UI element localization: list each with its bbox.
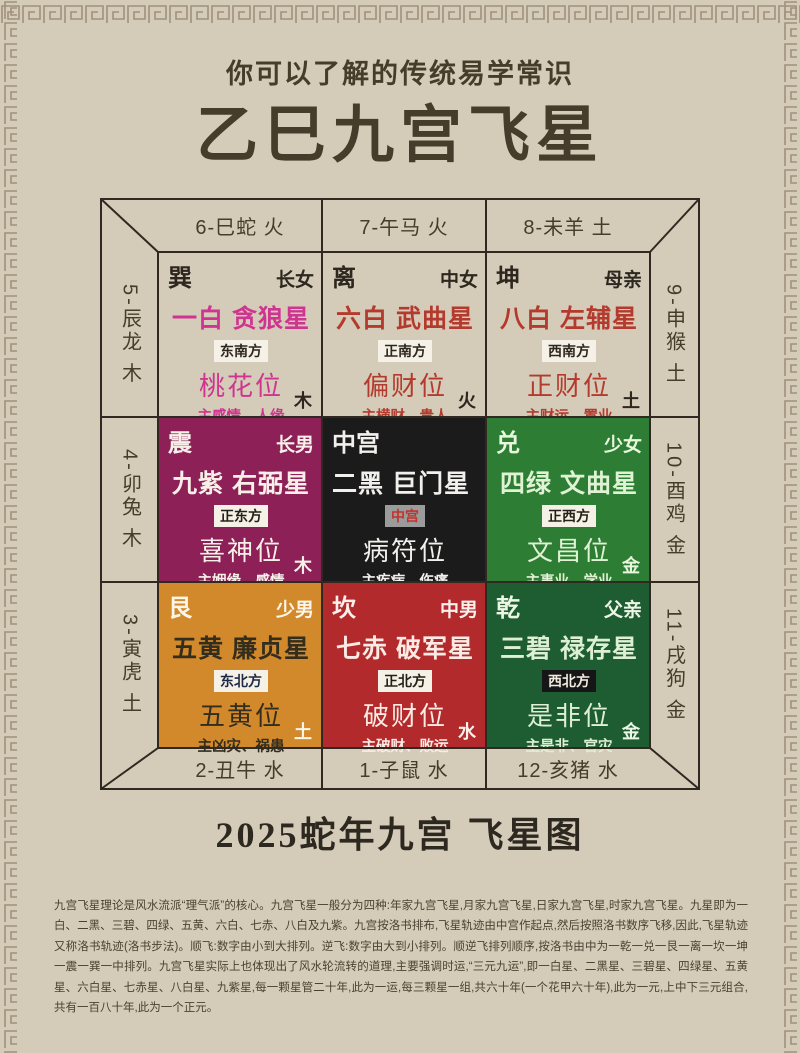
trigram-label: 坎 xyxy=(332,588,356,623)
trigram-label: 乾 xyxy=(496,588,520,623)
trigram-label: 巽 xyxy=(168,258,192,293)
page-title: 乙巳九宫飞星 xyxy=(0,84,800,174)
palace-cell-center: 中宫 二黑 巨门星 中宫 病符位 主疾病、伤痛 xyxy=(322,417,486,582)
meander-border-top-icon xyxy=(0,4,800,24)
element-label: 木 xyxy=(294,552,312,578)
palace-cell-gen: 艮 少男 五黄 廉贞星 东北方 五黄位 主凶灾、祸患 土 xyxy=(158,582,322,748)
family-member-label: 少女 xyxy=(604,430,642,457)
direction-badge: 正北方 xyxy=(378,670,432,692)
zodiac-label-bottom-2: 1-子鼠 水 xyxy=(322,748,486,788)
theory-paragraph: 九宫飞星理论是风水流派“理气派”的核心。九宫飞星一般分为四种:年家九宫飞星,月家… xyxy=(54,896,748,1019)
flying-star-name: 八白 左辅星 xyxy=(496,299,642,335)
element-label: 金 xyxy=(622,552,640,578)
flying-star-name: 三碧 禄存星 xyxy=(496,629,642,665)
family-member-label: 少男 xyxy=(276,595,314,622)
element-label: 土 xyxy=(294,718,312,744)
zodiac-label-right-3: 11-戌狗 金 xyxy=(650,582,698,748)
family-member-label: 中女 xyxy=(440,265,478,292)
palace-cell-qian: 乾 父亲 三碧 禄存星 西北方 是非位 主是非、官灾 金 xyxy=(486,582,650,748)
direction-badge: 东南方 xyxy=(214,340,268,362)
zodiac-label-top-2: 7-午马 火 xyxy=(322,200,486,250)
trigram-label: 震 xyxy=(168,423,192,458)
position-name: 喜神位 xyxy=(168,531,314,568)
flying-star-name: 四绿 文曲星 xyxy=(496,464,642,500)
zodiac-label-right-1: 9-申猴 土 xyxy=(650,252,698,417)
zodiac-label-top-1: 6-巳蛇 火 xyxy=(158,200,322,250)
position-name: 破财位 xyxy=(332,696,478,733)
position-name: 正财位 xyxy=(496,366,642,403)
family-member-label: 父亲 xyxy=(604,595,642,622)
palace-cell-li: 离 中女 六白 武曲星 正南方 偏财位 主横财、贵人 火 xyxy=(322,252,486,417)
zodiac-label-right-2: 10-酉鸡 金 xyxy=(650,417,698,582)
flying-star-name: 六白 武曲星 xyxy=(332,299,478,335)
direction-badge: 正东方 xyxy=(214,505,268,527)
family-member-label: 中男 xyxy=(440,595,478,622)
position-name: 病符位 xyxy=(332,531,478,568)
position-name: 偏财位 xyxy=(332,366,478,403)
zodiac-label-bottom-1: 2-丑牛 水 xyxy=(158,748,322,788)
element-label: 火 xyxy=(458,387,476,413)
flying-star-name: 七赤 破军星 xyxy=(332,629,478,665)
position-name: 桃花位 xyxy=(168,366,314,403)
direction-badge: 东北方 xyxy=(214,670,268,692)
direction-badge: 正南方 xyxy=(378,340,432,362)
trigram-label: 艮 xyxy=(168,588,192,623)
palace-cell-zhen: 震 长男 九紫 右弼星 正东方 喜神位 主姻缘、感情 木 xyxy=(158,417,322,582)
family-member-label: 母亲 xyxy=(604,265,642,292)
chart-caption: 2025蛇年九宫 飞星图 xyxy=(0,806,800,858)
zodiac-label-left-3: 3-寅虎 土 xyxy=(102,582,158,748)
trigram-label: 兑 xyxy=(496,423,520,458)
position-name: 五黄位 xyxy=(168,696,314,733)
family-member-label: 长男 xyxy=(276,430,314,457)
palace-cell-dui: 兑 少女 四绿 文曲星 正西方 文昌位 主事业、学业 金 xyxy=(486,417,650,582)
flying-star-name: 二黑 巨门星 xyxy=(332,464,478,500)
page: 你可以了解的传统易学常识 乙巳九宫飞星 巽 长女 一白 贪狼星 东南方 桃花位 … xyxy=(0,0,800,1053)
palace-cell-kun: 坤 母亲 八白 左辅星 西南方 正财位 主财运、置业 土 xyxy=(486,252,650,417)
palace-cell-xun: 巽 长女 一白 贪狼星 东南方 桃花位 主感情、人缘 木 xyxy=(158,252,322,417)
direction-badge: 中宫 xyxy=(385,505,425,527)
position-name: 文昌位 xyxy=(496,531,642,568)
zodiac-label-left-2: 4-卯兔 木 xyxy=(102,417,158,582)
flying-star-name: 一白 贪狼星 xyxy=(168,299,314,335)
zodiac-label-bottom-3: 12-亥猪 水 xyxy=(486,748,650,788)
element-label: 土 xyxy=(622,387,640,413)
family-member-label: 长女 xyxy=(276,265,314,292)
trigram-label: 坤 xyxy=(496,258,520,293)
zodiac-label-left-1: 5-辰龙 木 xyxy=(102,252,158,417)
trigram-label: 中宫 xyxy=(332,423,380,458)
position-name: 是非位 xyxy=(496,696,642,733)
direction-badge: 西北方 xyxy=(542,670,596,692)
nine-palace-grid: 巽 长女 一白 贪狼星 东南方 桃花位 主感情、人缘 木 离 中女 六白 武曲星… xyxy=(100,198,700,790)
element-label: 水 xyxy=(458,718,476,744)
flying-star-name: 九紫 右弼星 xyxy=(168,464,314,500)
flying-star-name: 五黄 廉贞星 xyxy=(168,629,314,665)
element-label: 金 xyxy=(622,718,640,744)
zodiac-label-top-3: 8-未羊 土 xyxy=(486,200,650,250)
trigram-label: 离 xyxy=(332,258,356,293)
palace-cell-kan: 坎 中男 七赤 破军星 正北方 破财位 主破财、败运 水 xyxy=(322,582,486,748)
direction-badge: 西南方 xyxy=(542,340,596,362)
direction-badge: 正西方 xyxy=(542,505,596,527)
element-label: 木 xyxy=(294,387,312,413)
